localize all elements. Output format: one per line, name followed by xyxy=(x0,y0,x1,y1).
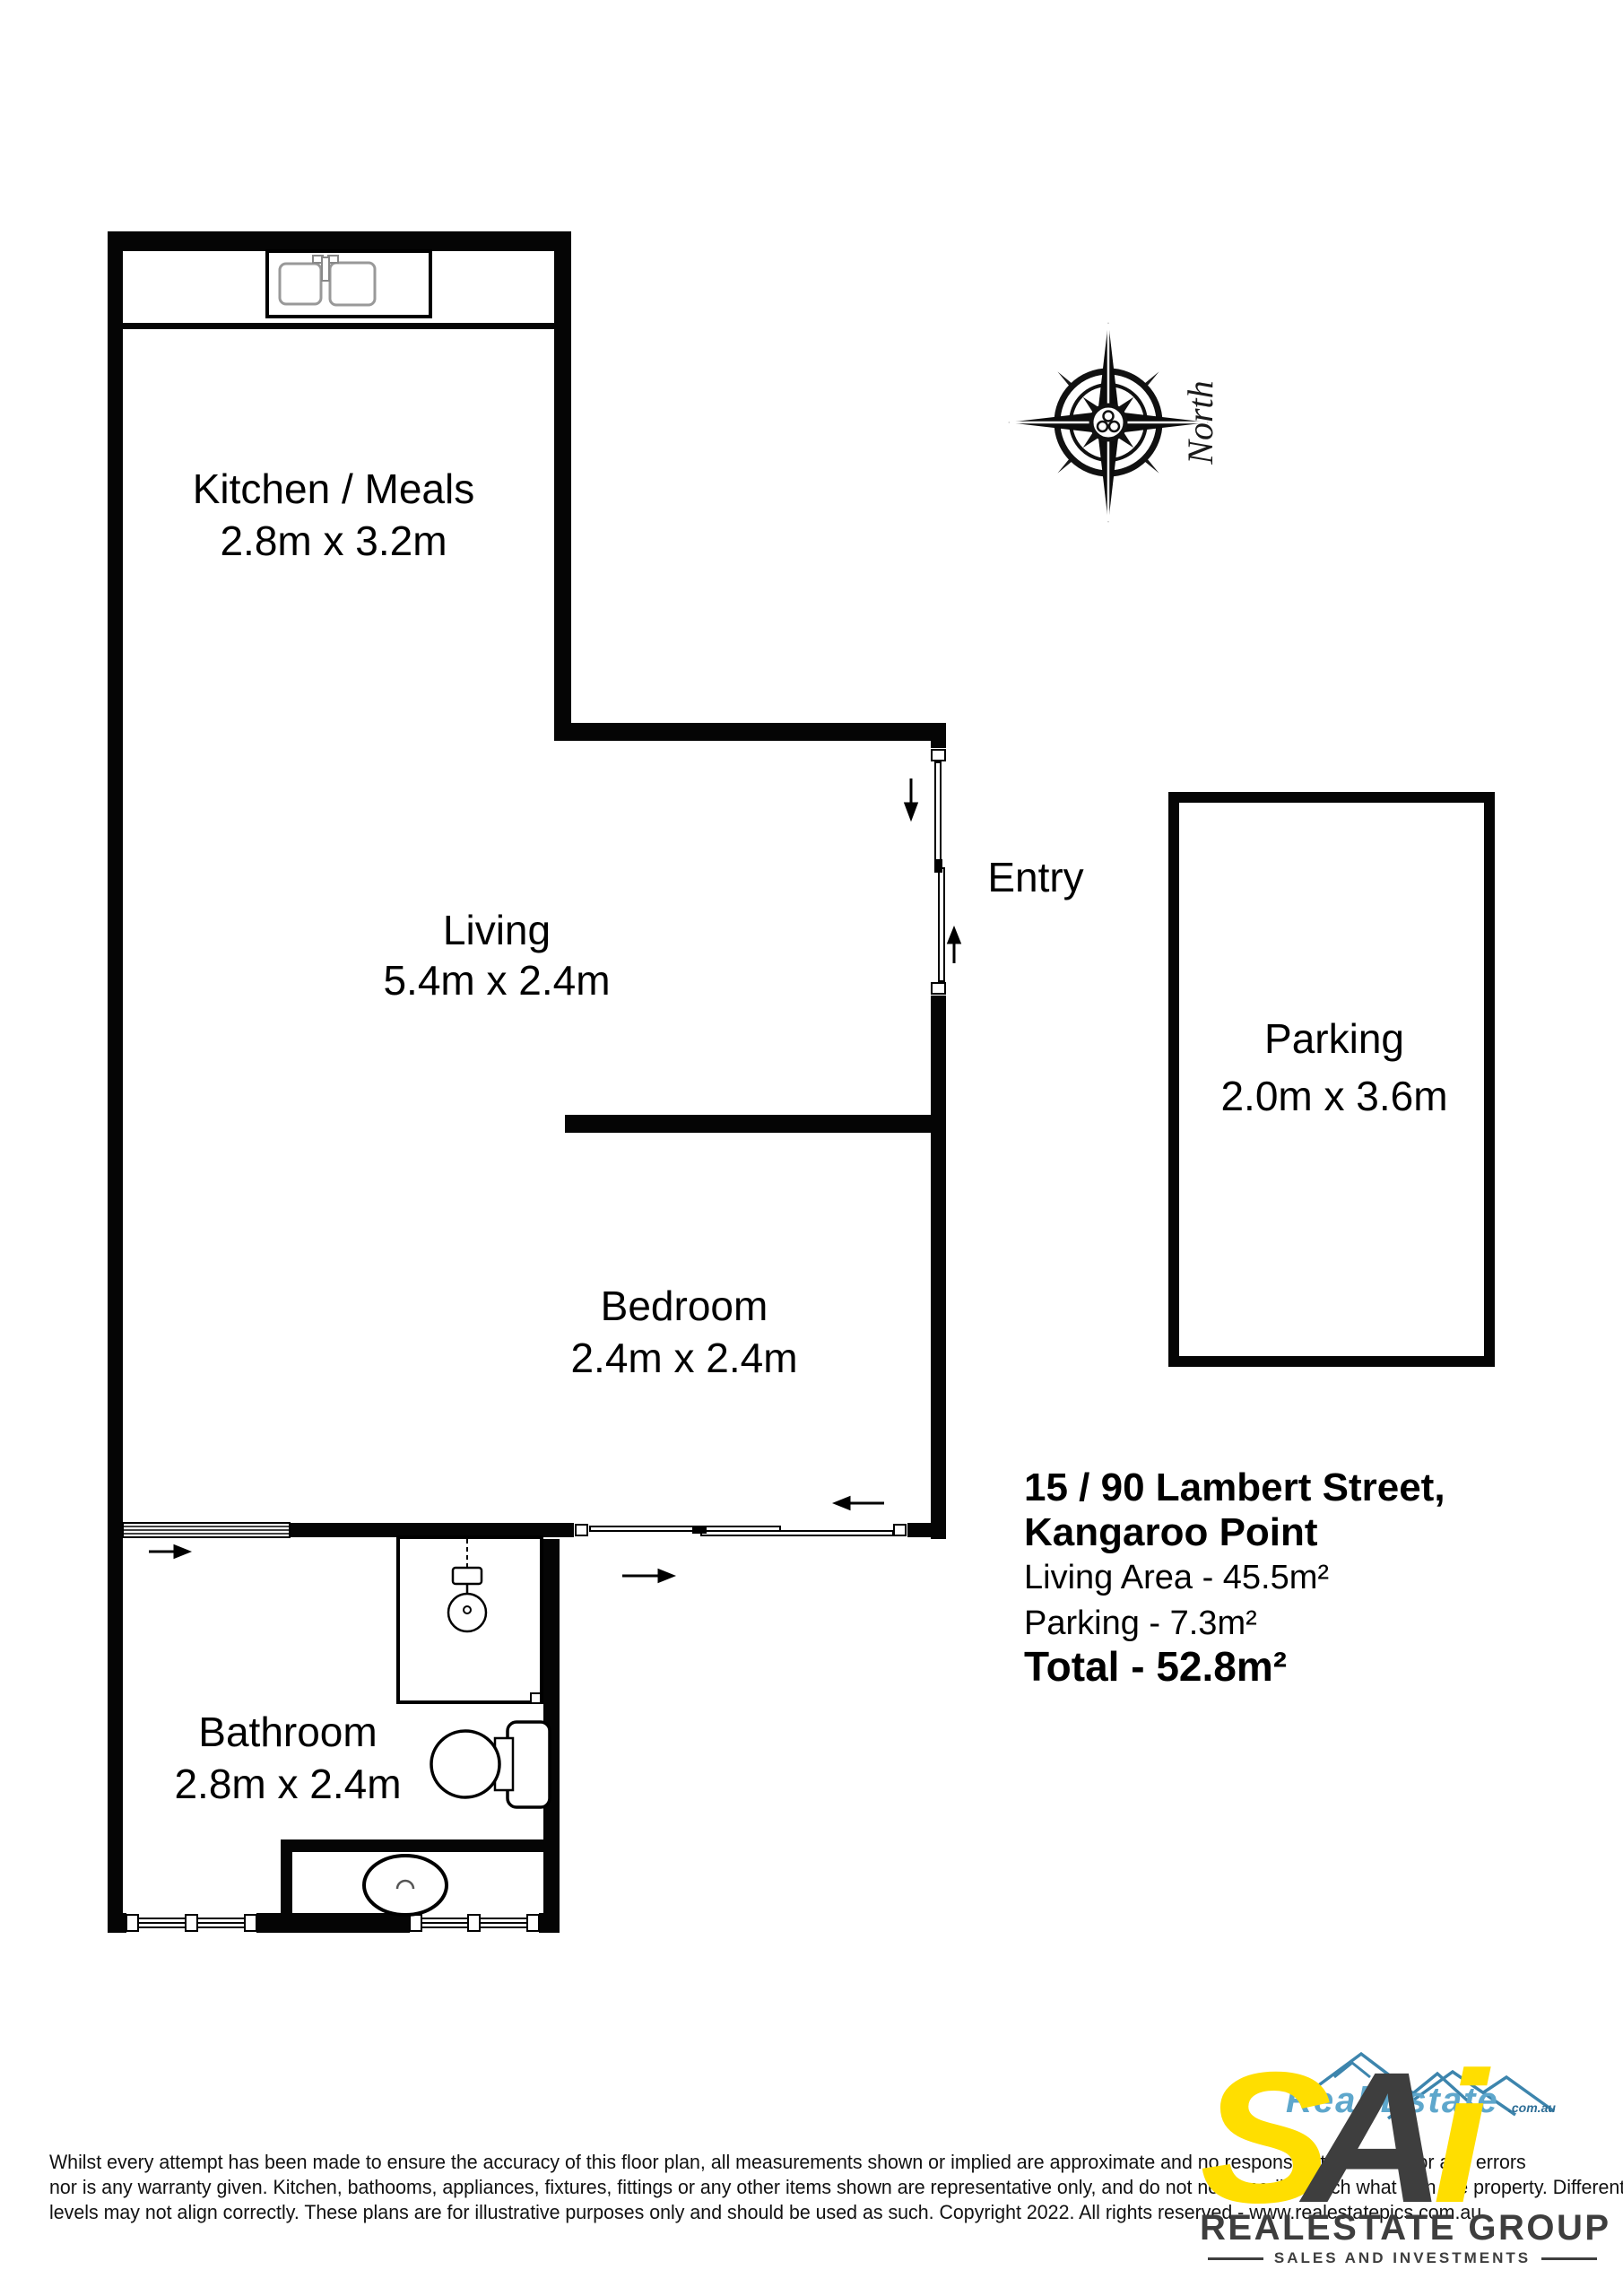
floor-plan-page: North Kitchen / Meals 2.8m x 3.2m Living… xyxy=(0,0,1623,2296)
living-area-value: Living Area - 45.5m² xyxy=(1024,1559,1329,1596)
room-label-kitchen: Kitchen / Meals xyxy=(193,465,474,512)
wall-left xyxy=(108,231,123,1933)
arrow-bedroom-exit-right-icon xyxy=(622,1570,673,1581)
logo-watermark-domain: .com.au xyxy=(1508,2100,1556,2115)
compass-north-label: North xyxy=(1180,380,1220,465)
kitchen-sink-icon xyxy=(267,251,430,317)
logo-rule-right xyxy=(1541,2257,1597,2260)
room-label-bedroom: Bedroom xyxy=(601,1283,768,1329)
shower-icon xyxy=(398,1537,542,1703)
total-area-value: Total - 52.8m² xyxy=(1024,1643,1287,1690)
room-label-entry: Entry xyxy=(987,854,1083,900)
bathroom-window-left-icon xyxy=(126,1913,256,1933)
logo-letters: SAi xyxy=(1200,2045,1488,2231)
room-dims-parking: 2.0m x 3.6m xyxy=(1220,1073,1447,1119)
property-summary: 15 / 90 Lambert Street, Kangaroo Point L… xyxy=(1024,1465,1445,1690)
arrow-bedroom-left-icon xyxy=(836,1498,884,1509)
room-dims-bathroom: 2.8m x 2.4m xyxy=(174,1761,401,1807)
room-dims-living: 5.4m x 2.4m xyxy=(383,957,610,1004)
wall-bathroom-bottom-c xyxy=(539,1913,560,1933)
room-label-living: Living xyxy=(443,907,551,953)
logo-group-name: REALESTATE GROUP xyxy=(1200,2208,1605,2248)
floor-plan-drawing: North Kitchen / Meals 2.8m x 3.2m Living… xyxy=(0,0,1623,2296)
arrow-entry-up-icon xyxy=(949,929,959,963)
entry-sliding-door-icon xyxy=(930,748,947,996)
arrow-entry-down-icon xyxy=(906,778,916,818)
wall-right-mid xyxy=(931,994,946,1539)
logo-rule-left xyxy=(1208,2257,1263,2260)
bedroom-sliding-door-icon xyxy=(574,1523,907,1537)
room-label-bathroom: Bathroom xyxy=(198,1709,377,1755)
arrow-bathroom-right-icon xyxy=(149,1546,188,1557)
wall-entry-stub xyxy=(931,723,946,750)
parking-area-value: Parking - 7.3m² xyxy=(1024,1605,1257,1642)
address-line2: Kangaroo Point xyxy=(1024,1510,1318,1554)
wall-living-bedroom-divider xyxy=(565,1115,946,1133)
logo-tagline: SALES AND INVESTMENTS xyxy=(1274,2249,1531,2267)
wall-bedroom-bottom-c xyxy=(907,1523,946,1537)
wall-kitchen-top xyxy=(108,231,571,251)
wall-bathroom-bottom-a xyxy=(108,1913,127,1933)
bathroom-window-right-icon xyxy=(410,1913,539,1933)
wall-living-step xyxy=(554,723,946,741)
wall-bathroom-bottom-b xyxy=(256,1913,410,1933)
wall-kitchen-right xyxy=(554,231,571,739)
logo-tagline-row: SALES AND INVESTMENTS xyxy=(1200,2249,1605,2267)
room-dims-bedroom: 2.4m x 2.4m xyxy=(570,1335,797,1381)
address-line1: 15 / 90 Lambert Street, xyxy=(1024,1465,1445,1509)
toilet-icon xyxy=(431,1722,550,1807)
kitchen-bench-edge xyxy=(123,323,554,329)
room-dims-kitchen: 2.8m x 3.2m xyxy=(220,517,447,564)
wall-bedroom-bottom-b xyxy=(290,1523,574,1537)
room-label-parking: Parking xyxy=(1264,1015,1404,1062)
compass-icon: North xyxy=(1007,321,1220,524)
bathroom-slider-icon xyxy=(123,1523,290,1537)
agency-logo: Real Estate .com.au SAi REALESTATE GROUP… xyxy=(1200,2041,1612,2282)
